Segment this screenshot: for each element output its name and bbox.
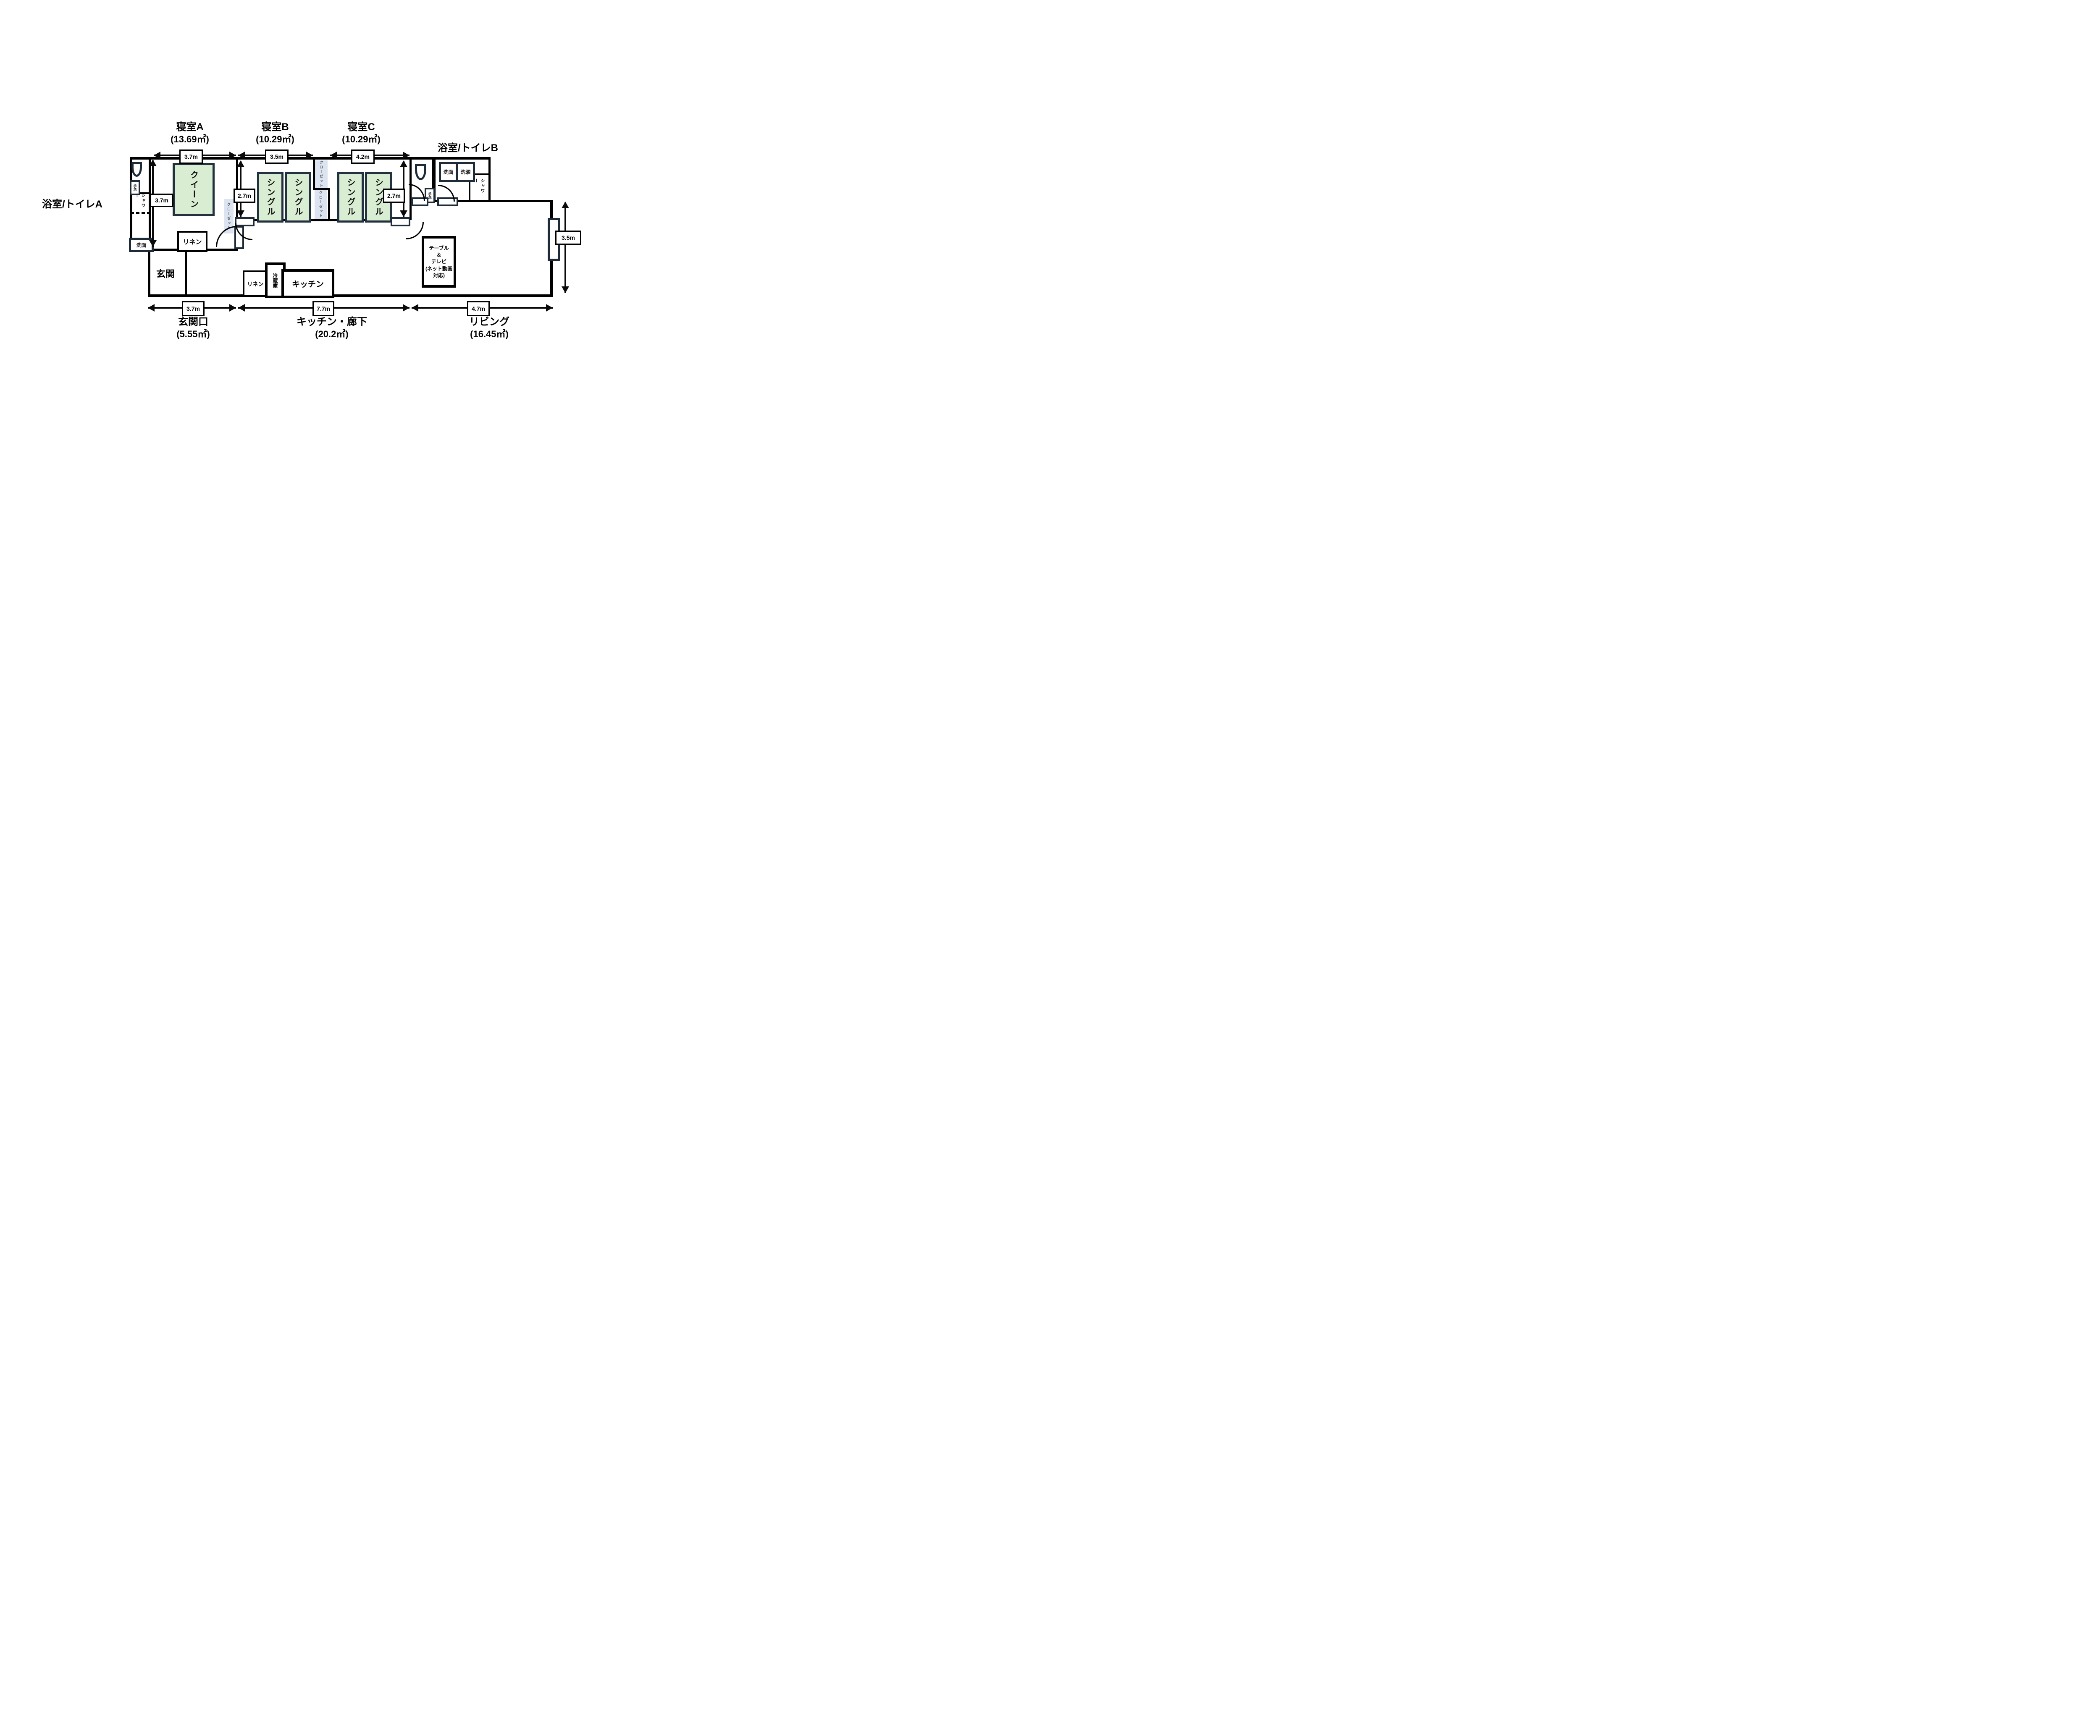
dim-side-a-arrow-up <box>149 160 157 166</box>
linen-a-label: リネン <box>183 237 202 246</box>
single-bed-c1-label: シングル <box>344 178 357 217</box>
dim-bottom-c-label: 4.7m <box>467 301 490 316</box>
dim-side-a-label: 3.7m <box>150 194 173 207</box>
kitchen-hallway-name: キッチン・廊下 <box>273 316 391 328</box>
shower-a-label: シャワー <box>133 193 146 212</box>
label-bathroom-b: 浴室/トイレB <box>438 139 498 154</box>
queen-bed: クイーン <box>173 163 215 216</box>
bedroom-b-name: 寝室B <box>233 121 317 134</box>
entrance-area-name: 玄関口 <box>151 316 235 328</box>
floor-plan: 寝室A (13.69㎡) 寝室B (10.29㎡) 寝室C (10.29㎡) 浴… <box>0 0 614 434</box>
dim-bottom-a-arrow-left <box>148 304 155 312</box>
dim-living-label: 3.5m <box>555 231 581 245</box>
dim-depth-b-arrow-up <box>237 160 244 167</box>
single-bed-b1-label: シングル <box>264 178 276 217</box>
toilet-b-bowl <box>415 166 426 180</box>
table-tv-line2: ＆ <box>436 252 441 258</box>
table-tv-line3: テレビ <box>431 258 446 265</box>
dim-top-c-label: 4.2m <box>351 149 375 164</box>
queen-bed-label: クイーン <box>188 170 200 209</box>
toilet-a-bowl <box>131 164 142 177</box>
dim-bottom-a-arrow-right <box>229 304 236 312</box>
label-bedroom-c: 寝室C (10.29㎡) <box>319 121 403 145</box>
label-entrance: 玄関 <box>156 267 175 280</box>
dim-top-c-arrow-right <box>403 152 409 159</box>
dim-top-a-arrow-right <box>229 152 236 159</box>
dim-depth-c-label: 2.7m <box>383 189 405 203</box>
wall-bc-closet-lower <box>328 188 330 221</box>
living-name: リビング <box>437 316 542 328</box>
dim-top-c-arrow-left <box>330 152 337 159</box>
washbasin-b-label: 洗面 <box>443 168 453 176</box>
table-tv-box: テーブル ＆ テレビ (ネット動画 対応) <box>422 236 456 288</box>
closet-bc-lower-label: クローゼット <box>318 191 324 218</box>
kitchen-hallway-size: (20.2㎡) <box>273 328 391 340</box>
dim-bottom-a-label: 3.7m <box>182 301 205 316</box>
handwash-a-label: 手洗 <box>133 184 137 191</box>
dim-living-arrow-up <box>562 202 569 208</box>
closet-a-label: クローゼット <box>226 202 232 230</box>
label-bedroom-b: 寝室B (10.29㎡) <box>233 121 317 145</box>
single-bed-c1: シングル <box>337 172 364 223</box>
dim-top-b-arrow-right <box>306 152 313 159</box>
toilet-a-icon <box>131 162 142 177</box>
entrance-area-size: (5.55㎡) <box>151 328 235 340</box>
bedroom-c-name: 寝室C <box>319 121 403 134</box>
dim-bottom-b-arrow-left <box>238 304 245 312</box>
dim-depth-c-arrow-up <box>400 160 407 167</box>
closet-bc-lower: クローゼット <box>315 190 327 219</box>
wall-bathroom-b-right <box>488 157 491 202</box>
closet-bc-upper: クローゼット <box>315 160 328 188</box>
kitchen-counter-label: キッチン <box>292 278 324 289</box>
wall-entrance-left <box>148 249 150 297</box>
door-bedroom-a-arc <box>216 226 237 247</box>
dim-depth-b-label: 2.7m <box>234 189 255 203</box>
dim-living-line <box>564 202 566 293</box>
door-bedroom-c-arc <box>406 222 424 239</box>
linen-corridor: リネン <box>243 270 268 296</box>
dim-depth-b-arrow-down <box>237 210 244 217</box>
bedroom-c-area: (10.29㎡) <box>319 134 403 145</box>
bedroom-a-name: 寝室A <box>148 121 232 134</box>
washbasin-a-label: 洗面 <box>136 241 146 249</box>
shower-b-area: シャワー <box>474 178 484 198</box>
dim-bottom-c-arrow-left <box>412 304 418 312</box>
shower-a-area: シャワー <box>135 193 144 212</box>
linen-corridor-label: リネン <box>247 280 263 288</box>
table-tv-line4: (ネット動画 <box>425 265 452 272</box>
dim-bottom-b-arrow-right <box>403 304 409 312</box>
wall-entrance-divider <box>185 249 187 295</box>
label-entrance-area: 玄関口 (5.55㎡) <box>151 316 235 340</box>
wall-bottom <box>148 294 553 297</box>
fridge-label: 冷蔵庫 <box>272 273 279 288</box>
wall-living-top <box>454 200 553 202</box>
dim-bottom-c-arrow-right <box>546 304 553 312</box>
toilet-b-icon <box>415 164 426 180</box>
dim-top-b-arrow-left <box>238 152 245 159</box>
dim-top-a-arrow-left <box>154 152 160 159</box>
bedroom-b-area: (10.29㎡) <box>233 134 317 145</box>
closet-bc-upper-label: クローゼット <box>319 160 324 188</box>
dim-living-arrow-down <box>562 286 569 293</box>
label-kitchen-hallway: キッチン・廊下 (20.2㎡) <box>273 316 391 340</box>
door-bathroom-b-arc <box>438 185 455 202</box>
washbasin-b-box: 洗面 <box>439 162 458 182</box>
label-bedroom-a: 寝室A (13.69㎡) <box>148 121 232 145</box>
living-size: (16.45㎡) <box>437 328 542 340</box>
shower-b-label: シャワー <box>472 178 485 198</box>
single-bed-b1: シングル <box>257 172 283 223</box>
dim-depth-c-arrow-down <box>400 210 407 217</box>
dim-bottom-b-label: 7.7m <box>312 301 334 316</box>
dim-side-a-arrow-down <box>149 240 157 247</box>
linen-bedroom-a: リネン <box>177 231 207 252</box>
label-bathroom-a: 浴室/トイレA <box>42 196 102 210</box>
dim-top-a-label: 3.7m <box>179 149 203 164</box>
door-toilet-b-arc <box>409 184 425 201</box>
label-living: リビング (16.45㎡) <box>437 316 542 340</box>
single-bed-b2-label: シングル <box>292 178 304 217</box>
bedroom-a-area: (13.69㎡) <box>148 134 232 145</box>
single-bed-b2: シングル <box>285 172 311 223</box>
table-tv-line1: テーブル <box>429 245 449 252</box>
table-tv-line5: 対応) <box>433 272 445 279</box>
dim-top-b-label: 3.5m <box>265 149 289 164</box>
kitchen-counter-box: キッチン <box>281 269 334 298</box>
laundry-b-label: 洗濯 <box>460 168 470 176</box>
